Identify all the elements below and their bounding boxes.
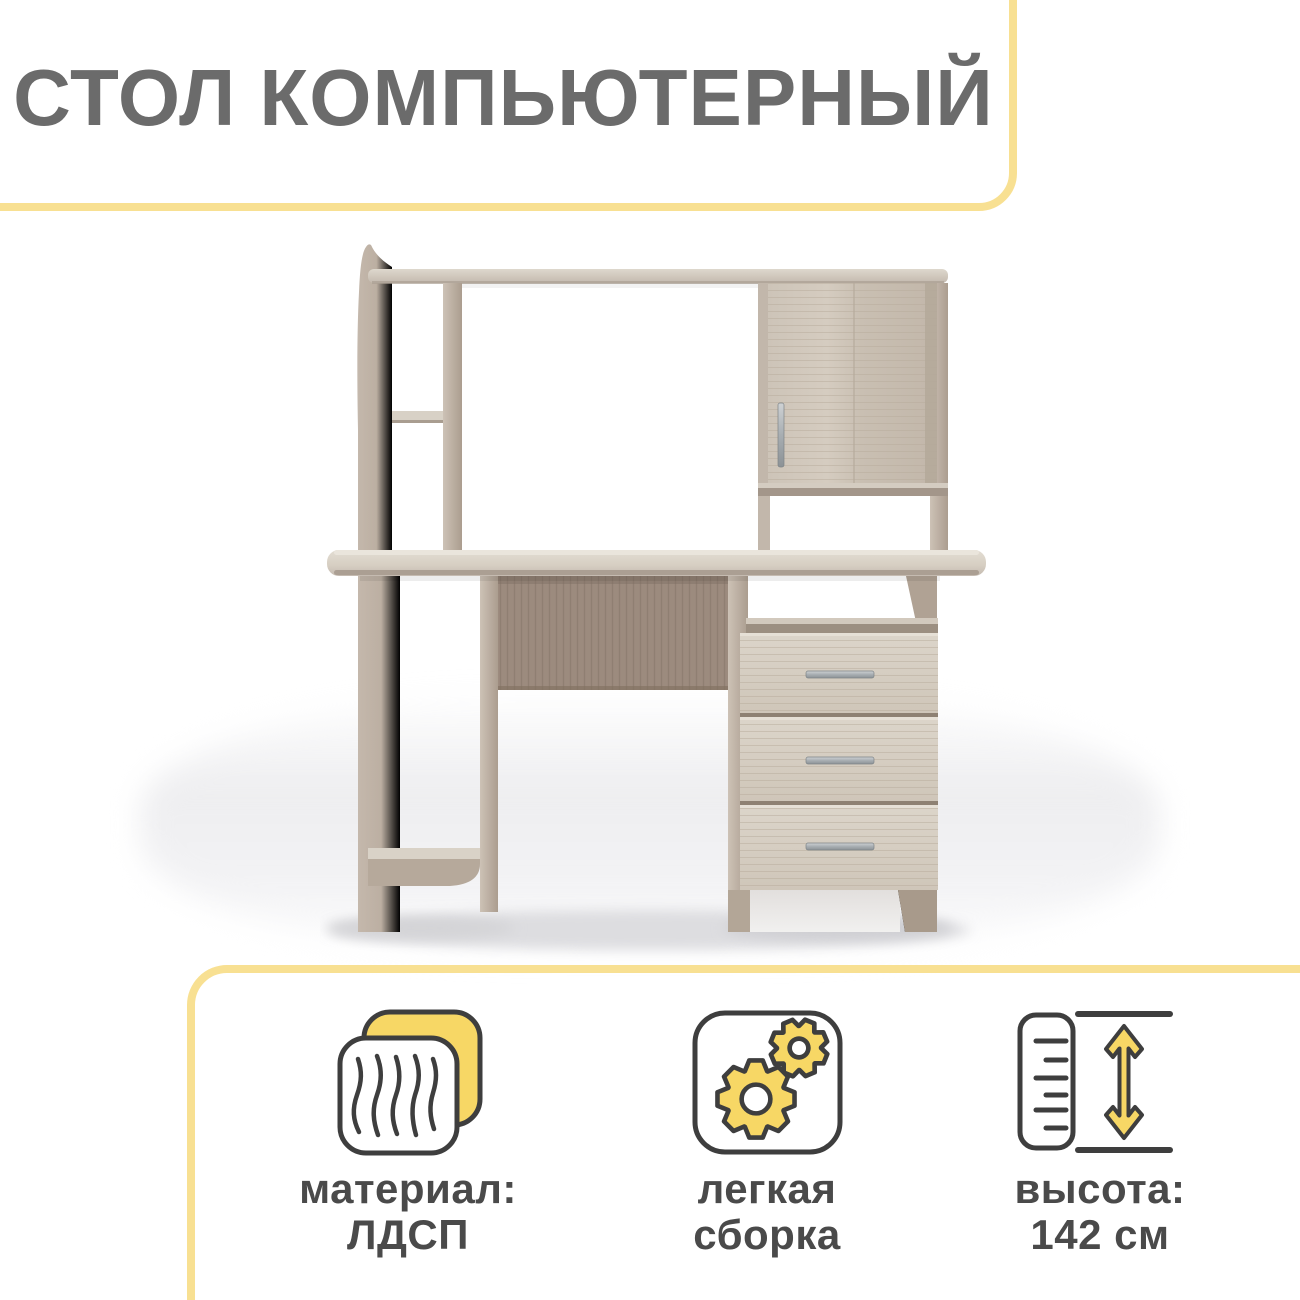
height-ruler-icon: [1020, 1014, 1170, 1150]
inner-left-panel: [480, 576, 498, 912]
desk-base: [358, 576, 938, 932]
wood-texture-icon: [340, 1012, 480, 1153]
bottom-shelf: [368, 848, 480, 886]
desktop: [327, 550, 986, 581]
feature-line: материал:: [258, 1166, 558, 1212]
hutch-cabinet: [758, 283, 948, 550]
drawer-unit: [728, 576, 938, 932]
feature-assembly-label: легкая сборка: [617, 1166, 917, 1258]
feature-material-label: материал: ЛДСП: [258, 1166, 558, 1258]
door-handle: [778, 403, 784, 467]
product-image: [320, 228, 1000, 973]
hutch-left-fin: [357, 244, 392, 556]
double-arrow: [1106, 1026, 1142, 1138]
feature-line: высота:: [950, 1166, 1250, 1212]
gears-icon: [695, 1011, 840, 1152]
feature-line: ЛДСП: [258, 1212, 558, 1258]
page-title: СТОЛ КОМПЬЮТЕРНЫЙ: [13, 52, 994, 144]
feature-line: сборка: [617, 1212, 917, 1258]
feature-height-label: высота: 142 см: [950, 1166, 1250, 1258]
pedestal-right-top: [906, 576, 937, 622]
hutch-mid-shelf: [392, 411, 443, 423]
feature-icons: [300, 1000, 1200, 1165]
cabinet-bottom-shelf: [758, 483, 948, 496]
hutch-top-shelf: [368, 269, 948, 283]
feature-line: 142 см: [950, 1212, 1250, 1258]
title-box: СТОЛ КОМПЬЮТЕРНЫЙ: [0, 0, 1017, 211]
desk-hutch: [357, 244, 948, 556]
feature-line: легкая: [617, 1166, 917, 1212]
product-card: СТОЛ КОМПЬЮТЕРНЫЙ: [0, 0, 1300, 1300]
cabinet-door: [768, 283, 937, 483]
modesty-panel: [498, 576, 728, 690]
hutch-divider: [443, 283, 462, 550]
